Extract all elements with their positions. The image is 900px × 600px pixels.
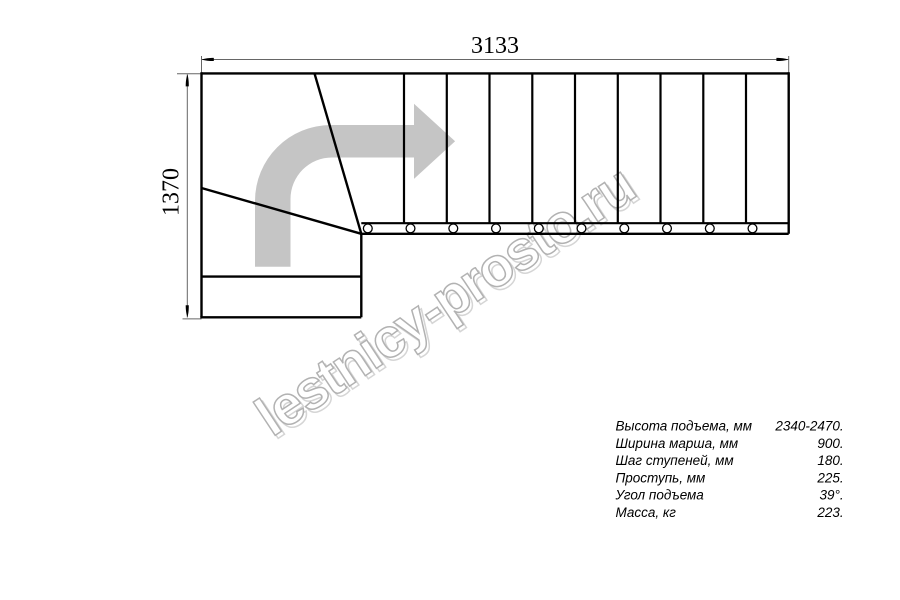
svg-text:Высота подъема, мм: Высота подъема, мм [616, 419, 752, 434]
svg-text:3133: 3133 [471, 33, 519, 59]
svg-text:Угол подъема: Угол подъема [615, 488, 705, 503]
svg-text:223.: 223. [816, 505, 843, 520]
svg-text:225.: 225. [816, 470, 843, 485]
svg-text:900.: 900. [817, 436, 843, 451]
svg-text:Ширина марша, мм: Ширина марша, мм [616, 436, 739, 451]
svg-text:39°.: 39°. [820, 488, 844, 503]
svg-text:lestnicy-prosto.ru: lestnicy-prosto.ru [244, 153, 645, 447]
svg-text:Проступь, мм: Проступь, мм [616, 470, 706, 485]
svg-text:1370: 1370 [158, 168, 184, 216]
svg-text:180.: 180. [817, 453, 843, 468]
svg-text:Шаг ступеней, мм: Шаг ступеней, мм [616, 453, 734, 468]
svg-text:2340-2470.: 2340-2470. [774, 419, 843, 434]
svg-text:Масса, кг: Масса, кг [616, 505, 677, 520]
